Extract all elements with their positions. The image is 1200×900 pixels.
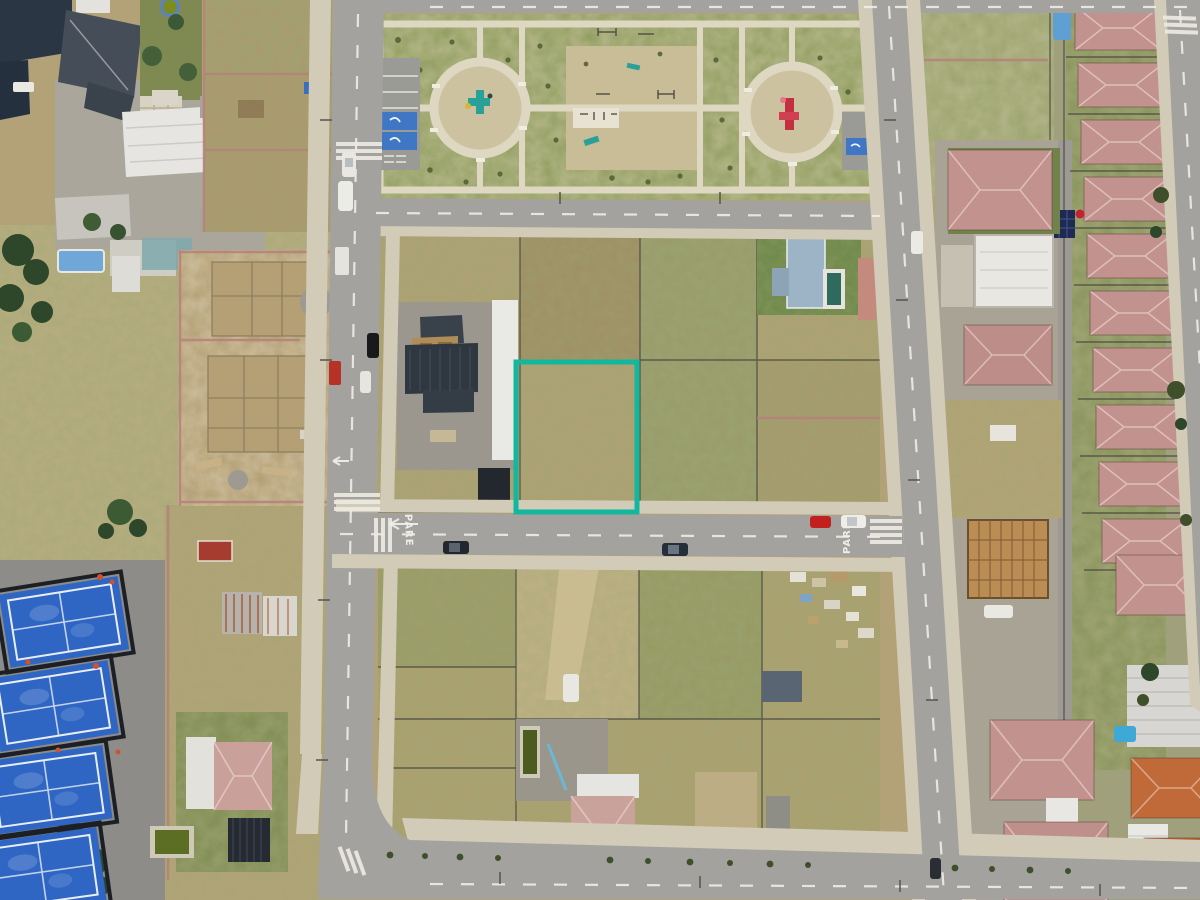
road-marking-pare-left: PARE [402,514,414,547]
green-pool [155,830,189,854]
parking-bays-left [378,58,420,170]
white-van-lot [563,674,579,702]
pool [827,273,841,305]
red-roof-shack [198,541,232,561]
crosswalk-left-road-lower [334,493,380,511]
dark-car [930,858,941,879]
wood-frame-construction [968,520,1048,598]
white-car [911,231,923,254]
white-van [984,605,1013,618]
dark-sedan [662,543,688,556]
pink-house [990,720,1094,800]
container [858,258,876,320]
rubble [941,245,973,307]
pink-house [1087,234,1173,278]
pink-house [1096,405,1182,449]
red-umbrella [1076,210,1085,219]
pink-house [1078,63,1164,107]
green-pool [523,730,537,774]
pink-house [1093,348,1179,392]
play-slab [573,108,619,128]
aerial-photo: Aerial drone view of a new residential s… [0,0,1200,900]
pink-house [1090,291,1176,335]
blue-roof-house [757,237,876,320]
white-roof-house [975,235,1053,307]
white-truck [335,247,349,275]
padel-court [0,822,111,900]
pink-house [948,150,1052,230]
aerial-photo-stage: Aerial drone view of a new residential s… [0,0,1200,900]
crosswalk-far-right-road [1163,15,1198,34]
red-car [810,516,831,528]
crosswalk-main-road-west [374,518,392,552]
dark-shed [228,818,270,862]
pink-roof-house [214,742,272,810]
park [370,14,886,200]
dark-sedan [443,541,469,554]
red-truck [329,361,341,385]
pink-house [964,325,1052,385]
white-van [13,82,34,92]
white-car [360,371,371,393]
pink-house [1081,120,1167,164]
center-top-block [378,230,880,514]
pink-house [1099,462,1185,506]
pool [1114,726,1136,742]
black-car [367,333,379,358]
orange-roof-house [1131,758,1200,818]
pool [58,250,104,272]
accessible-stall [846,138,868,155]
padel-court [0,571,134,672]
gray-shed [762,671,802,702]
white-garage-roof [186,737,216,809]
